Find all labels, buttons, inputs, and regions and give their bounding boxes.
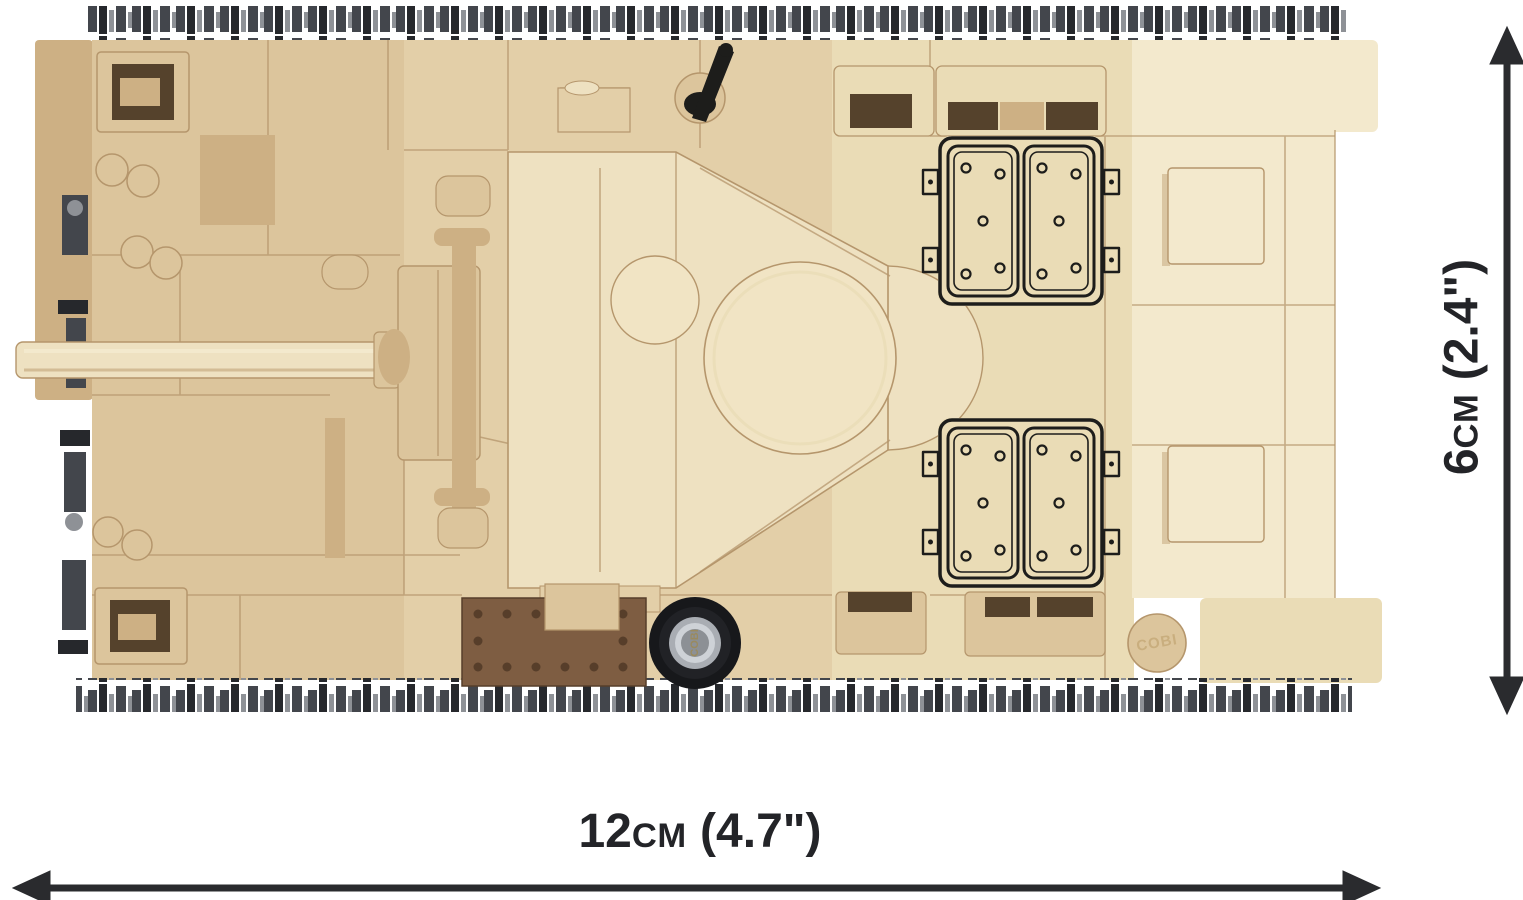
- cobi-stud: COBI: [1128, 614, 1186, 672]
- height-unit: cm: [1448, 394, 1486, 449]
- periscope-dome: [611, 256, 699, 344]
- height-dimension-arrow: [1490, 27, 1523, 714]
- side-vents: [836, 592, 1105, 656]
- track-top: [88, 6, 1346, 40]
- wheel-hub-logo: COBI: [689, 629, 701, 657]
- width-value: 12: [578, 805, 631, 858]
- arrowhead-top: [1490, 27, 1523, 64]
- height-value: 6: [1436, 448, 1489, 475]
- width-unit: cm: [632, 817, 687, 855]
- brown-riveted-plate: [462, 584, 646, 686]
- arrowhead-left: [13, 871, 50, 900]
- engine-hatch-pair-lower: [923, 418, 1119, 588]
- height-imperial: (2.4"): [1436, 259, 1489, 380]
- engine-vents: [834, 66, 1106, 136]
- product-dimension-image: COBI COBI: [0, 0, 1523, 900]
- width-dimension-arrow: [13, 871, 1380, 900]
- width-dimension-label: 12cm(4.7"): [540, 804, 860, 859]
- commander-cupola: [704, 262, 896, 454]
- arrowhead-right: [1343, 871, 1380, 900]
- height-dimension-label: 6cm(2.4"): [1435, 259, 1490, 475]
- engine-hatch-pair-upper: [923, 136, 1119, 306]
- width-imperial: (4.7"): [700, 805, 821, 858]
- tank-top-view-illustration: COBI COBI: [0, 0, 1523, 900]
- arrowhead-bottom: [1490, 677, 1523, 714]
- road-wheel: COBI: [649, 597, 741, 689]
